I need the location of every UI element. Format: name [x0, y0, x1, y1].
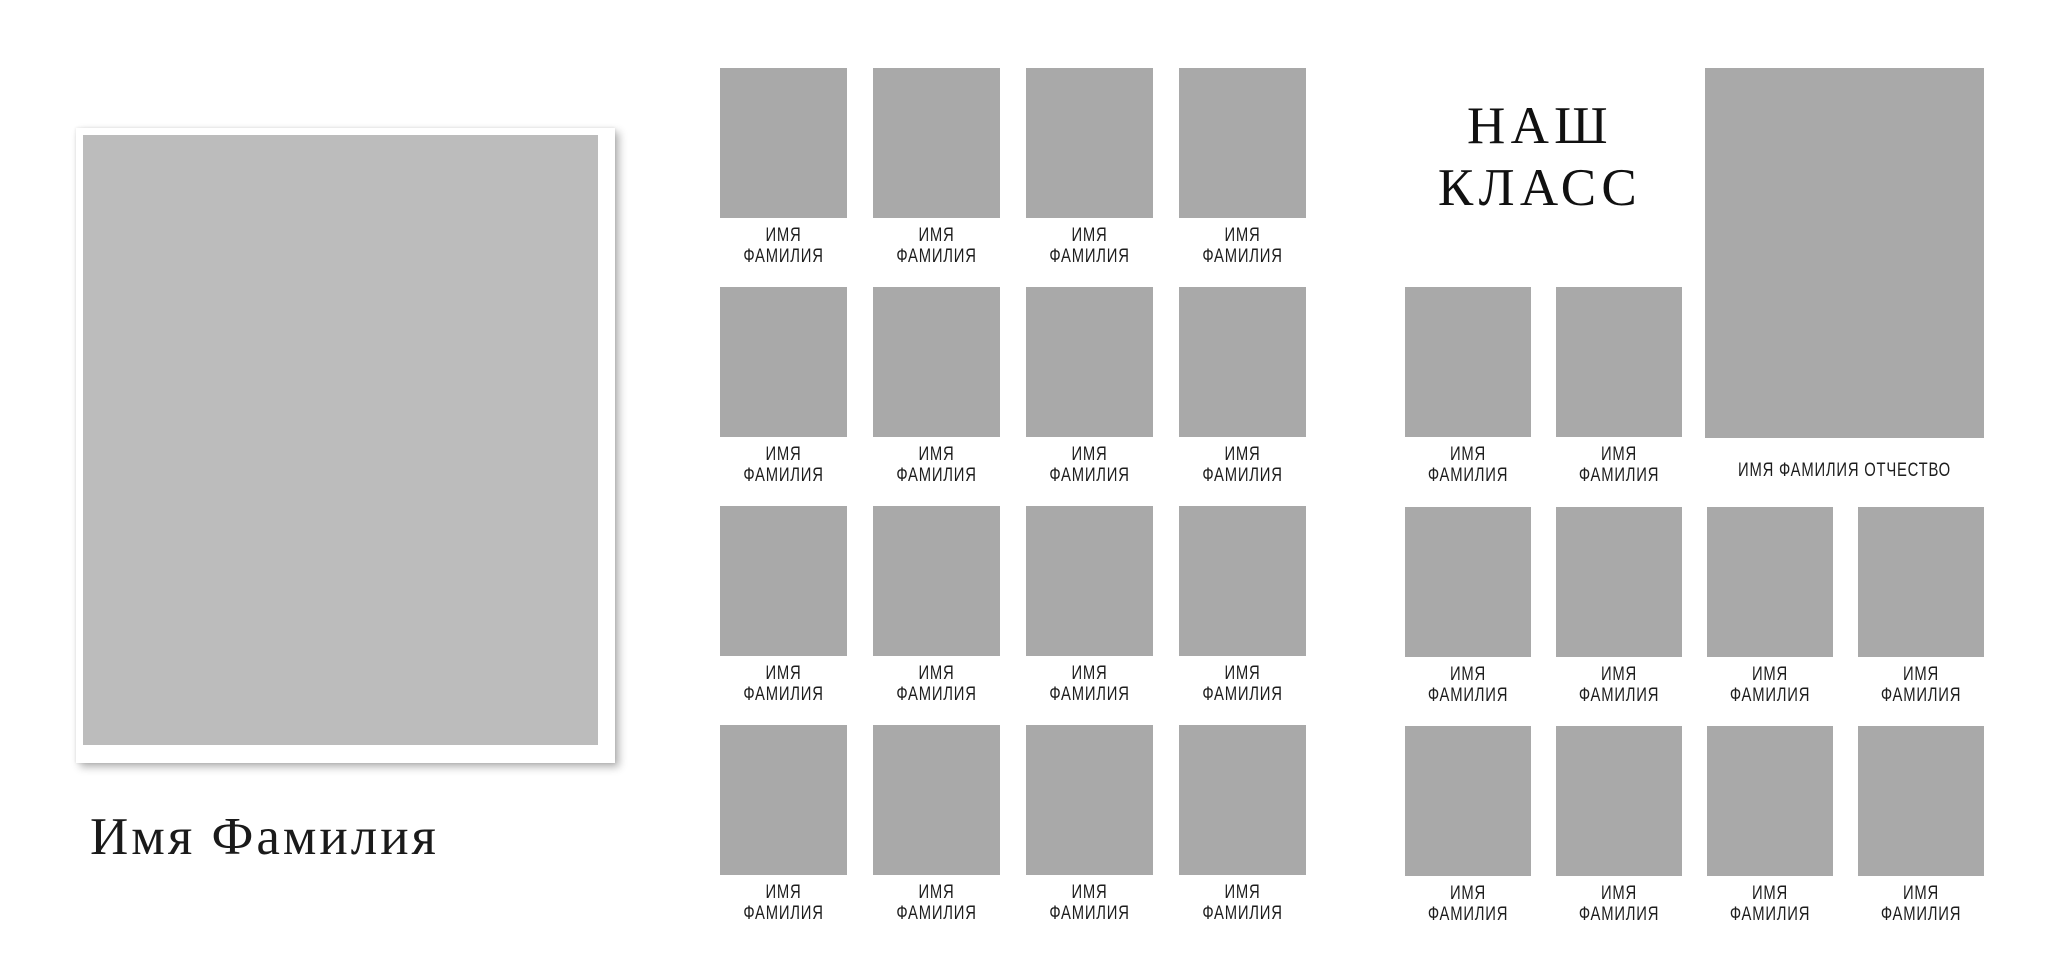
student-photo-slot: ИМЯ ФАМИЛИЯ — [1556, 507, 1682, 726]
first-name-line: ИМЯ — [1721, 883, 1819, 904]
student-photo-slot: ИМЯ ФАМИЛИЯ — [1026, 506, 1153, 725]
student-photo-slot: ИМЯ ФАМИЛИЯ — [1179, 68, 1306, 287]
first-name-line: ИМЯ — [1570, 664, 1668, 685]
photo-placeholder[interactable] — [1026, 506, 1153, 656]
photo-placeholder[interactable] — [1556, 507, 1682, 657]
student-photo-slot: ИМЯ ФАМИЛИЯ — [1026, 287, 1153, 506]
student-name-label: ИМЯ ФАМИЛИЯ — [1193, 663, 1292, 705]
student-name-label: ИМЯ ФАМИЛИЯ — [1872, 664, 1970, 706]
first-name-line: ИМЯ — [1721, 664, 1819, 685]
photo-placeholder[interactable] — [873, 506, 1000, 656]
first-name-line: ИМЯ — [887, 663, 986, 684]
student-photo-slot: ИМЯ ФАМИЛИЯ — [1026, 725, 1153, 944]
last-name-line: ФАМИЛИЯ — [734, 465, 833, 486]
student-name-label: ИМЯ ФАМИЛИЯ — [887, 663, 986, 705]
last-name-line: ФАМИЛИЯ — [1419, 685, 1517, 706]
last-name-line: ФАМИЛИЯ — [734, 246, 833, 267]
first-name-line: ИМЯ — [1570, 444, 1668, 465]
student-name-label: ИМЯ ФАМИЛИЯ — [887, 444, 986, 486]
first-name-line: ИМЯ — [887, 444, 986, 465]
student-name-label: ИМЯ ФАМИЛИЯ — [1040, 444, 1139, 486]
photo-placeholder[interactable] — [1556, 287, 1682, 437]
last-name-line: ФАМИЛИЯ — [734, 903, 833, 924]
photo-placeholder[interactable] — [720, 506, 847, 656]
student-name-label: ИМЯ ФАМИЛИЯ — [1872, 883, 1970, 925]
first-name-line: ИМЯ — [734, 663, 833, 684]
last-name-line: ФАМИЛИЯ — [887, 903, 986, 924]
student-name-label: ИМЯ ФАМИЛИЯ — [734, 444, 833, 486]
student-photo-slot: ИМЯ ФАМИЛИЯ — [1405, 726, 1531, 945]
photo-placeholder[interactable] — [1405, 287, 1531, 437]
photo-placeholder[interactable] — [1405, 726, 1531, 876]
teacher-name-label: ИМЯ ФАМИЛИЯ ОТЧЕСТВО — [1736, 460, 1954, 481]
first-name-line: ИМЯ — [734, 882, 833, 903]
photo-placeholder[interactable] — [873, 68, 1000, 218]
first-name-line: ИМЯ — [1872, 664, 1970, 685]
first-name-line: ИМЯ — [1193, 882, 1292, 903]
student-photo-slot: ИМЯ ФАМИЛИЯ — [720, 725, 847, 944]
first-name-line: ИМЯ — [1419, 664, 1517, 685]
last-name-line: ФАМИЛИЯ — [1193, 903, 1292, 924]
first-name-line: ИМЯ — [1193, 444, 1292, 465]
last-name-line: ФАМИЛИЯ — [1193, 465, 1292, 486]
teacher-name-line: ИМЯ ФАМИЛИЯ ОТЧЕСТВО — [1736, 460, 1954, 481]
last-name-line: ФАМИЛИЯ — [1721, 904, 1819, 925]
album-spread: Имя Фамилия ИМЯ ФАМИЛИЯ ИМЯ ФАМИЛИЯ ИМЯ … — [0, 0, 2048, 976]
photo-placeholder[interactable] — [1858, 507, 1984, 657]
last-name-line: ФАМИЛИЯ — [1872, 904, 1970, 925]
last-name-line: ФАМИЛИЯ — [1040, 903, 1139, 924]
last-name-line: ФАМИЛИЯ — [1040, 684, 1139, 705]
title-line-2: КЛАСС — [1396, 157, 1684, 219]
last-name-line: ФАМИЛИЯ — [1872, 685, 1970, 706]
last-name-line: ФАМИЛИЯ — [734, 684, 833, 705]
student-name-label: ИМЯ ФАМИЛИЯ — [1570, 444, 1668, 486]
last-name-line: ФАМИЛИЯ — [1193, 684, 1292, 705]
last-name-line: ФАМИЛИЯ — [1721, 685, 1819, 706]
photo-placeholder[interactable] — [1707, 726, 1833, 876]
student-name-label: ИМЯ ФАМИЛИЯ — [1419, 883, 1517, 925]
photo-placeholder[interactable] — [720, 725, 847, 875]
student-name-label: ИМЯ ФАМИЛИЯ — [1721, 883, 1819, 925]
student-photo-slot: ИМЯ ФАМИЛИЯ — [720, 68, 847, 287]
student-photo-slot: ИМЯ ФАМИЛИЯ — [1707, 726, 1833, 945]
student-photo-slot: ИМЯ ФАМИЛИЯ — [1026, 68, 1153, 287]
last-name-line: ФАМИЛИЯ — [1570, 465, 1668, 486]
student-name-label: ИМЯ ФАМИЛИЯ — [1193, 225, 1292, 267]
student-photo-slot: ИМЯ ФАМИЛИЯ — [720, 287, 847, 506]
last-name-line: ФАМИЛИЯ — [887, 684, 986, 705]
last-name-line: ФАМИЛИЯ — [1570, 685, 1668, 706]
first-name-line: ИМЯ — [734, 225, 833, 246]
cover-photo-card — [76, 128, 615, 763]
student-name-label: ИМЯ ФАМИЛИЯ — [887, 225, 986, 267]
teacher-photo-slot: ИМЯ ФАМИЛИЯ ОТЧЕСТВО — [1705, 68, 1984, 481]
student-name-label: ИМЯ ФАМИЛИЯ — [1040, 882, 1139, 924]
title-line-1: НАШ — [1396, 95, 1684, 157]
last-name-line: ФАМИЛИЯ — [887, 465, 986, 486]
photo-placeholder[interactable] — [1179, 506, 1306, 656]
student-photo-slot: ИМЯ ФАМИЛИЯ — [1707, 507, 1833, 726]
student-name-label: ИМЯ ФАМИЛИЯ — [734, 663, 833, 705]
first-name-line: ИМЯ — [887, 882, 986, 903]
photo-placeholder[interactable] — [1556, 726, 1682, 876]
first-name-line: ИМЯ — [1040, 225, 1139, 246]
student-name-label: ИМЯ ФАМИЛИЯ — [1721, 664, 1819, 706]
photo-placeholder[interactable] — [1405, 507, 1531, 657]
photo-placeholder[interactable] — [720, 68, 847, 218]
photo-placeholder[interactable] — [1026, 68, 1153, 218]
student-photo-slot: ИМЯ ФАМИЛИЯ — [1179, 287, 1306, 506]
student-photo-slot: ИМЯ ФАМИЛИЯ — [1179, 506, 1306, 725]
student-photo-slot: ИМЯ ФАМИЛИЯ — [873, 506, 1000, 725]
student-name-label: ИМЯ ФАМИЛИЯ — [1193, 444, 1292, 486]
student-photo-slot: ИМЯ ФАМИЛИЯ — [1179, 725, 1306, 944]
first-name-line: ИМЯ — [1040, 444, 1139, 465]
photo-placeholder[interactable] — [1179, 68, 1306, 218]
last-name-line: ФАМИЛИЯ — [1040, 465, 1139, 486]
cover-photo-placeholder[interactable] — [83, 135, 598, 745]
photo-placeholder[interactable] — [720, 287, 847, 437]
first-name-line: ИМЯ — [1570, 883, 1668, 904]
cover-caption: Имя Фамилия — [90, 806, 650, 868]
student-photo-slot: ИМЯ ФАМИЛИЯ — [1858, 726, 1984, 945]
photo-placeholder[interactable] — [1858, 726, 1984, 876]
student-photo-slot: ИМЯ ФАМИЛИЯ — [873, 725, 1000, 944]
student-name-label: ИМЯ ФАМИЛИЯ — [734, 882, 833, 924]
photo-placeholder[interactable] — [1179, 725, 1306, 875]
first-name-line: ИМЯ — [1193, 663, 1292, 684]
student-name-label: ИМЯ ФАМИЛИЯ — [1040, 225, 1139, 267]
student-photo-slot: ИМЯ ФАМИЛИЯ — [720, 506, 847, 725]
first-name-line: ИМЯ — [1419, 883, 1517, 904]
photo-placeholder[interactable] — [1179, 287, 1306, 437]
first-name-line: ИМЯ — [1040, 882, 1139, 903]
student-photo-slot: ИМЯ ФАМИЛИЯ — [1405, 507, 1531, 726]
last-name-line: ФАМИЛИЯ — [1040, 246, 1139, 267]
last-name-line: ФАМИЛИЯ — [1570, 904, 1668, 925]
first-name-line: ИМЯ — [1040, 663, 1139, 684]
student-name-label: ИМЯ ФАМИЛИЯ — [1570, 664, 1668, 706]
students-grid-right: ИМЯ ФАМИЛИЯ ИМЯ ФАМИЛИЯ ИМЯ ФАМИЛИЯ ИМЯ … — [1405, 507, 1984, 945]
album-title: НАШ КЛАСС — [1396, 95, 1684, 219]
last-name-line: ФАМИЛИЯ — [1419, 904, 1517, 925]
student-name-label: ИМЯ ФАМИЛИЯ — [1419, 444, 1517, 486]
first-name-line: ИМЯ — [734, 444, 833, 465]
photo-placeholder[interactable] — [1707, 507, 1833, 657]
first-name-line: ИМЯ — [1872, 883, 1970, 904]
student-name-label: ИМЯ ФАМИЛИЯ — [1570, 883, 1668, 925]
last-name-line: ФАМИЛИЯ — [1193, 246, 1292, 267]
student-name-label: ИМЯ ФАМИЛИЯ — [734, 225, 833, 267]
photo-placeholder[interactable] — [873, 287, 1000, 437]
last-name-line: ФАМИЛИЯ — [1419, 465, 1517, 486]
student-name-label: ИМЯ ФАМИЛИЯ — [1193, 882, 1292, 924]
student-name-label: ИМЯ ФАМИЛИЯ — [1419, 664, 1517, 706]
student-name-label: ИМЯ ФАМИЛИЯ — [887, 882, 986, 924]
student-photo-slot: ИМЯ ФАМИЛИЯ — [873, 68, 1000, 287]
photo-placeholder[interactable] — [873, 725, 1000, 875]
first-name-line: ИМЯ — [1193, 225, 1292, 246]
student-name-label: ИМЯ ФАМИЛИЯ — [1040, 663, 1139, 705]
student-photo-slot: ИМЯ ФАМИЛИЯ — [1405, 287, 1531, 506]
student-photo-slot: ИМЯ ФАМИЛИЯ — [1556, 287, 1682, 506]
first-name-line: ИМЯ — [1419, 444, 1517, 465]
student-photo-slot: ИМЯ ФАМИЛИЯ — [1858, 507, 1984, 726]
last-name-line: ФАМИЛИЯ — [887, 246, 986, 267]
students-grid-middle: ИМЯ ФАМИЛИЯ ИМЯ ФАМИЛИЯ ИМЯ ФАМИЛИЯ ИМЯ … — [720, 68, 1306, 944]
student-photo-slot: ИМЯ ФАМИЛИЯ — [1556, 726, 1682, 945]
student-photo-slot: ИМЯ ФАМИЛИЯ — [873, 287, 1000, 506]
teacher-photo-placeholder[interactable] — [1705, 68, 1984, 438]
photo-placeholder[interactable] — [1026, 287, 1153, 437]
photo-placeholder[interactable] — [1026, 725, 1153, 875]
first-name-line: ИМЯ — [887, 225, 986, 246]
